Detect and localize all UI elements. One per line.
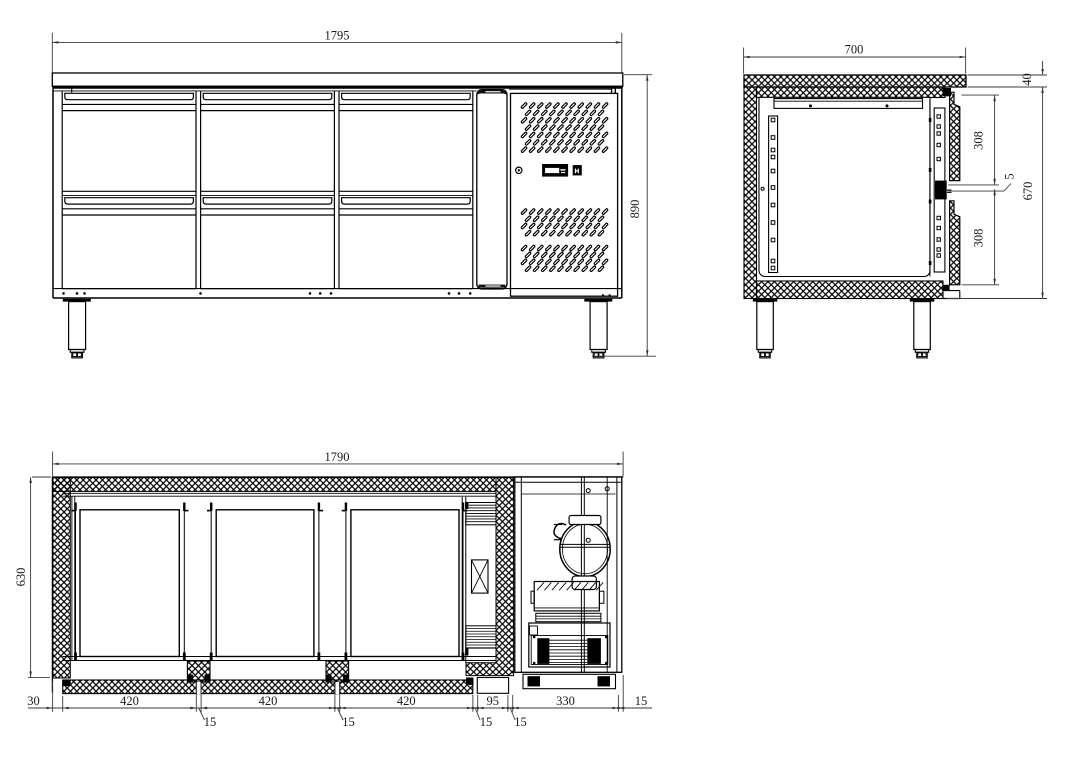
svg-text:15: 15 [204, 715, 217, 729]
svg-text:308: 308 [972, 229, 986, 248]
svg-text:890: 890 [628, 200, 642, 219]
svg-text:15: 15 [514, 715, 527, 729]
svg-text:420: 420 [120, 694, 139, 708]
svg-text:30: 30 [27, 694, 40, 708]
svg-text:15: 15 [342, 715, 355, 729]
svg-text:330: 330 [556, 694, 575, 708]
svg-text:420: 420 [259, 694, 278, 708]
svg-text:1795: 1795 [325, 29, 350, 43]
svg-text:15: 15 [635, 694, 648, 708]
svg-text:5: 5 [1003, 173, 1017, 179]
svg-text:420: 420 [397, 694, 416, 708]
svg-text:95: 95 [487, 694, 500, 708]
svg-text:15: 15 [480, 715, 493, 729]
svg-text:1790: 1790 [325, 450, 350, 464]
svg-text:630: 630 [14, 568, 28, 587]
svg-text:308: 308 [972, 131, 986, 150]
svg-text:700: 700 [845, 43, 864, 57]
svg-text:670: 670 [1021, 182, 1035, 201]
svg-text:40: 40 [1020, 73, 1034, 86]
